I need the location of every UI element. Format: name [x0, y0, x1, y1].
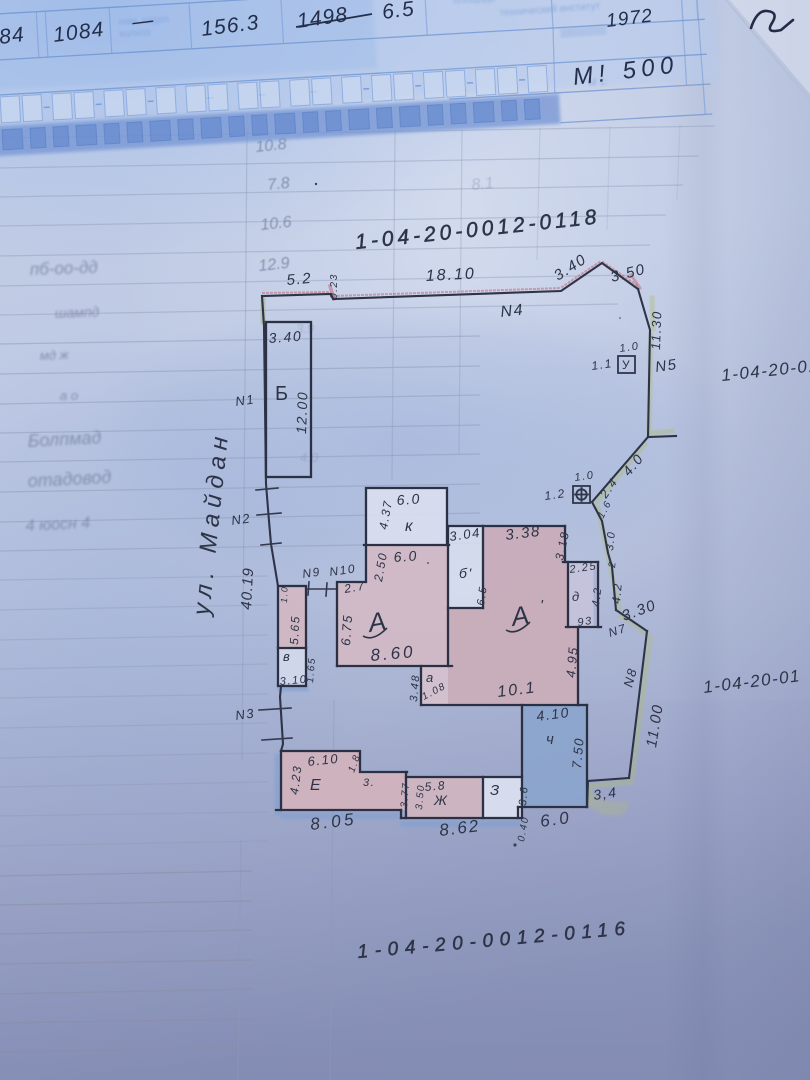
svg-text:2: 2	[607, 560, 619, 569]
svg-text:7.8: 7.8	[267, 175, 291, 194]
svg-text:3,4: 3,4	[592, 784, 618, 803]
svg-text:N1: N1	[234, 391, 256, 409]
svg-text:У: У	[622, 358, 631, 372]
svg-text:8.1: 8.1	[471, 175, 495, 194]
svg-text:N4: N4	[500, 302, 525, 321]
svg-text:5.65: 5.65	[287, 615, 303, 645]
svg-text:N2: N2	[230, 510, 252, 528]
svg-text:Е: Е	[310, 777, 322, 794]
svg-text:93: 93	[577, 615, 594, 629]
svg-text:84: 84	[0, 23, 26, 49]
svg-text:1.2: 1.2	[543, 486, 566, 503]
svg-text:N5: N5	[654, 356, 679, 376]
svg-text:4.95: 4.95	[563, 645, 581, 678]
svg-text:6.0: 6.0	[396, 490, 421, 508]
svg-text:10.6: 10.6	[260, 214, 293, 234]
svg-text:0.23: 0.23	[329, 273, 340, 299]
svg-text:N9: N9	[301, 565, 321, 581]
svg-text:4.2: 4.2	[590, 586, 604, 607]
svg-text:18.10: 18.10	[425, 265, 476, 285]
svg-text:Ж: Ж	[433, 792, 448, 808]
svg-text:а о: а о	[60, 388, 78, 403]
svg-text:3.6: 3.6	[517, 785, 531, 806]
svg-text:11.30: 11.30	[648, 310, 664, 350]
svg-text:6.75: 6.75	[338, 614, 355, 647]
svg-text:мд ж: мд ж	[40, 347, 70, 363]
svg-text:3.10: 3.10	[279, 674, 308, 688]
svg-text:7.50: 7.50	[569, 736, 587, 769]
svg-text:6.5: 6.5	[381, 0, 416, 24]
svg-text:': '	[540, 597, 544, 614]
svg-text:к: к	[405, 518, 414, 535]
svg-text:N3: N3	[234, 705, 256, 723]
svg-text:в: в	[283, 649, 291, 664]
svg-text:пб-оо-дд: пб-оо-дд	[29, 258, 98, 279]
svg-text:Б: Б	[275, 383, 290, 405]
svg-text:3.77: 3.77	[399, 782, 412, 809]
svg-text:а: а	[426, 670, 435, 685]
svg-text:3.48: 3.48	[408, 674, 422, 703]
svg-text:8.60: 8.60	[370, 642, 417, 665]
svg-text:д: д	[572, 589, 581, 604]
svg-text:—: —	[130, 8, 156, 34]
svg-text:б': б'	[459, 565, 473, 581]
svg-text:12.00: 12.00	[293, 391, 310, 435]
svg-text:З: З	[490, 782, 501, 799]
svg-text:6.0: 6.0	[393, 547, 418, 565]
svg-text:3.0: 3.0	[604, 530, 618, 551]
svg-text:4 юосн 4: 4 юосн 4	[25, 515, 90, 535]
svg-text:шампд: шампд	[55, 303, 100, 321]
svg-text:3.: 3.	[363, 777, 375, 789]
svg-text:40.19: 40.19	[238, 567, 257, 610]
svg-text:Болпмад: Болпмад	[27, 427, 102, 451]
svg-text:5.2: 5.2	[286, 270, 313, 289]
svg-text:ч: ч	[546, 731, 555, 748]
svg-text:3.50: 3.50	[414, 784, 427, 811]
svg-text:1.1: 1.1	[590, 356, 613, 373]
svg-text:1.0: 1.0	[279, 585, 290, 603]
svg-text:3.40: 3.40	[268, 328, 303, 346]
svg-text:4.2: 4.2	[609, 582, 625, 605]
svg-text:4.0: 4.0	[300, 450, 319, 465]
